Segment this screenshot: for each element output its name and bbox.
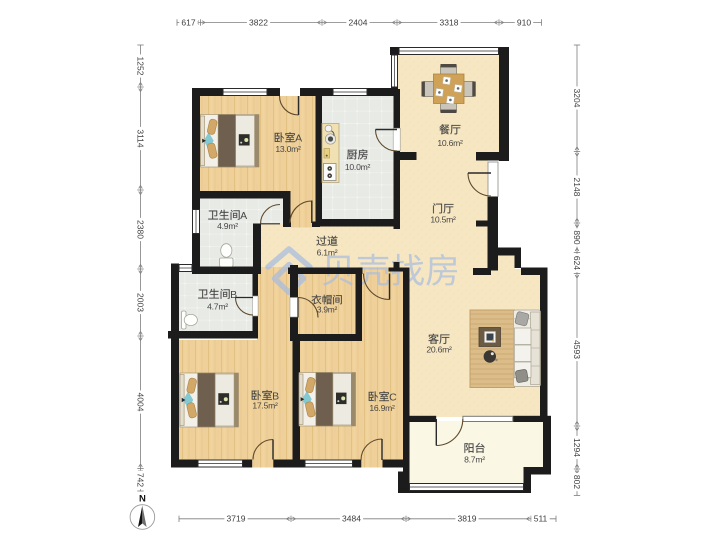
svg-text:3204: 3204: [572, 89, 582, 108]
svg-text:2148: 2148: [572, 178, 582, 197]
svg-text:3.9m²: 3.9m²: [317, 305, 338, 315]
svg-text:4.9m²: 4.9m²: [217, 221, 238, 231]
svg-text:A: A: [240, 210, 247, 222]
svg-text:C: C: [389, 392, 397, 404]
svg-text:742: 742: [136, 473, 146, 487]
svg-text:2380: 2380: [136, 220, 146, 239]
svg-text:3719: 3719: [227, 514, 246, 524]
svg-text:2003: 2003: [136, 293, 146, 312]
svg-text:3819: 3819: [458, 514, 477, 524]
svg-text:17.5m²: 17.5m²: [252, 401, 278, 411]
svg-text:N: N: [139, 494, 146, 505]
svg-text:10.6m²: 10.6m²: [437, 138, 463, 148]
svg-text:511: 511: [534, 514, 548, 524]
svg-text:802: 802: [572, 475, 582, 489]
svg-text:4.7m²: 4.7m²: [207, 302, 228, 312]
svg-text:B: B: [230, 289, 237, 301]
svg-text:16.9m²: 16.9m²: [369, 403, 395, 413]
svg-text:3114: 3114: [136, 129, 146, 148]
svg-text:10.5m²: 10.5m²: [430, 215, 456, 225]
svg-text:1294: 1294: [572, 438, 582, 457]
svg-text:1252: 1252: [136, 57, 146, 76]
svg-text:4004: 4004: [136, 393, 146, 412]
svg-text:6.1m²: 6.1m²: [317, 248, 338, 258]
svg-text:20.6m²: 20.6m²: [426, 345, 452, 355]
svg-text:3318: 3318: [440, 17, 459, 27]
svg-text:3484: 3484: [342, 514, 361, 524]
svg-text:4593: 4593: [572, 340, 582, 359]
svg-text:910: 910: [517, 17, 531, 27]
svg-text:2404: 2404: [349, 17, 368, 27]
svg-text:13.0m²: 13.0m²: [275, 144, 301, 154]
svg-text:890: 890: [572, 230, 582, 244]
svg-text:617: 617: [181, 17, 195, 27]
svg-text:3822: 3822: [249, 17, 268, 27]
svg-text:A: A: [295, 133, 302, 145]
svg-text:624: 624: [572, 256, 582, 270]
svg-text:10.0m²: 10.0m²: [345, 162, 371, 172]
svg-text:8.7m²: 8.7m²: [464, 455, 485, 465]
